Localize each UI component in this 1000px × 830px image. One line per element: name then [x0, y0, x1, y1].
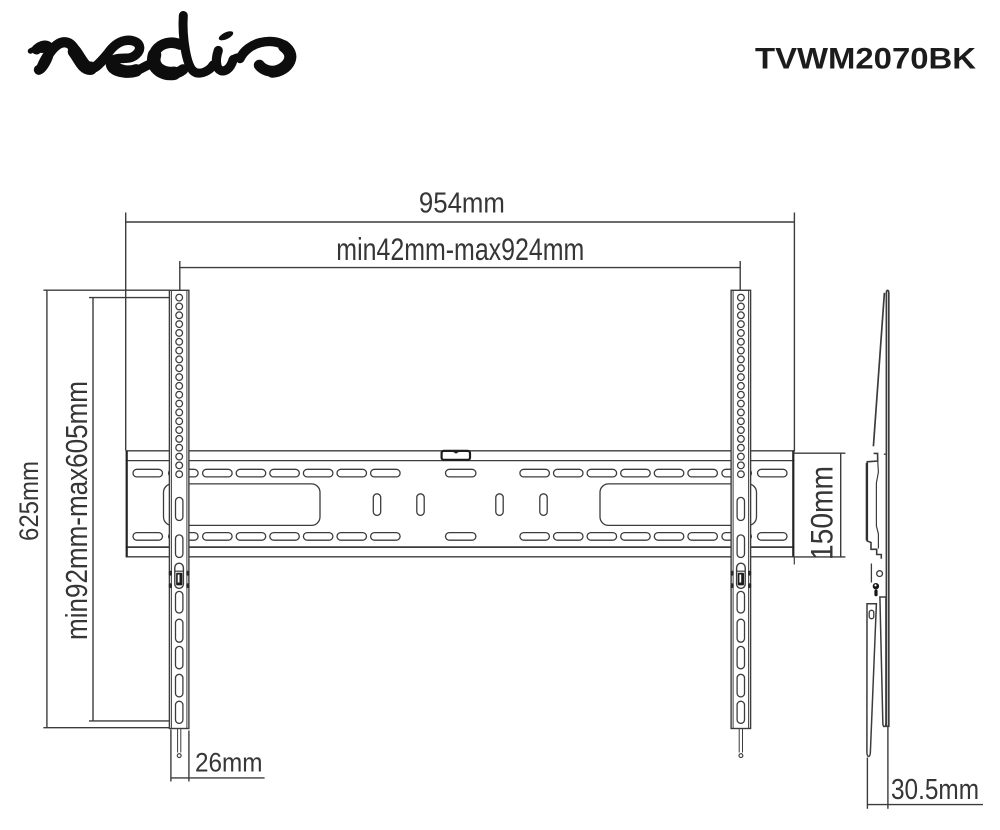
svg-text:954mm: 954mm	[419, 188, 505, 220]
svg-text:150mm: 150mm	[804, 466, 840, 560]
svg-text:TVWM2070BK: TVWM2070BK	[755, 43, 977, 76]
svg-text:min42mm-max924mm: min42mm-max924mm	[336, 231, 584, 267]
svg-text:30.5mm: 30.5mm	[891, 774, 979, 806]
svg-text:26mm: 26mm	[195, 748, 263, 778]
svg-text:min92mm-max605mm: min92mm-max605mm	[59, 381, 94, 640]
svg-text:625mm: 625mm	[14, 461, 44, 541]
